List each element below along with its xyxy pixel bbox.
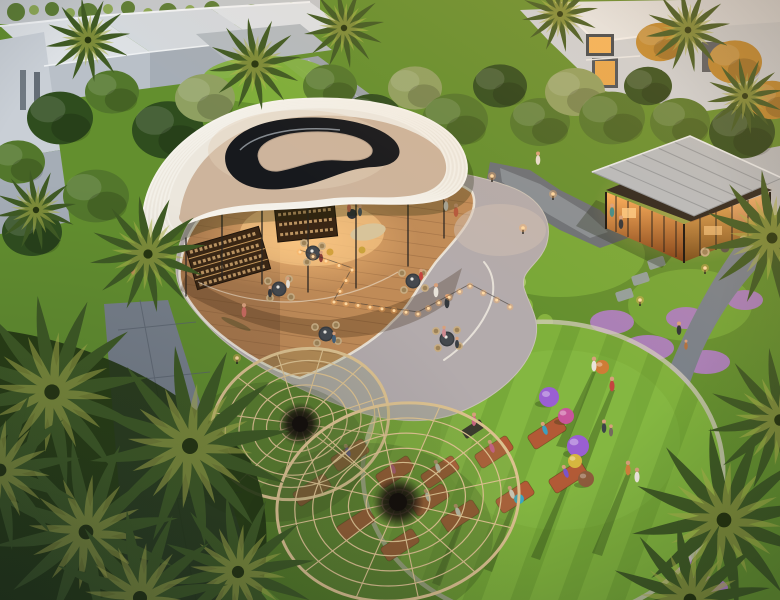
aerial-render bbox=[0, 0, 780, 600]
vignette bbox=[0, 0, 780, 600]
render-viewport bbox=[0, 0, 780, 600]
